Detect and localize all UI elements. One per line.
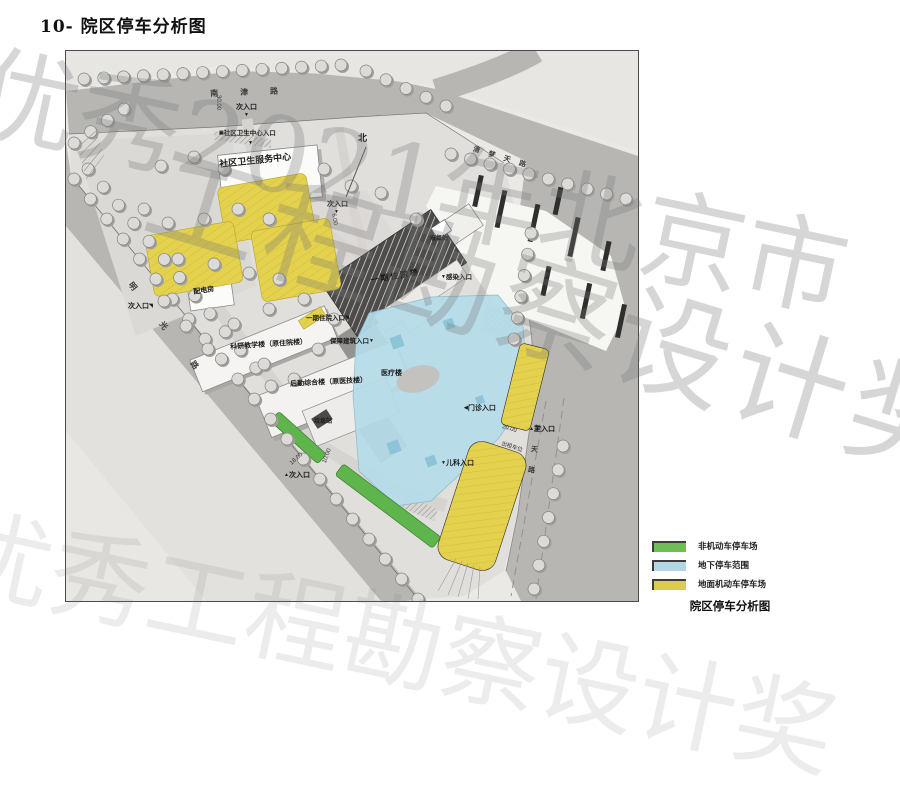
arrow-icon: ▼ [369,338,374,344]
dimension-30: 30.00 [215,95,221,110]
entrance-label-infection: ▼感染入口 [441,275,472,282]
site-plan-svg [66,51,638,601]
legend-row-bike: 非机动车停车场 [652,540,766,552]
map-caption: 院区停车分析图 [660,598,800,614]
arrow-down-icon: ▼ [248,141,253,146]
legend-row-surface: 地面机动车停车场 [652,578,766,590]
entrance-label-outpatient: ◀门诊入口 [464,405,496,412]
legend-row-underground: 地下停车范围 [652,559,766,571]
entrance-label-phase1-inpatient: 一期住院入口◥ [306,316,349,323]
building-label-oxygen-station: 液氧站 [430,236,448,242]
entrance-label-west-secondary: 次入口◥ [128,303,153,310]
legend-label-underground: 地下停车范围 [698,559,749,571]
entrance-label-community-center: ▣社区卫生中心入口 [219,131,276,138]
legend: 非机动车停车场 地下停车范围 地面机动车停车场 [652,540,766,597]
building-label-medical: 医疗楼 [381,370,402,377]
site-plan-frame [65,50,639,602]
entrance-label-south-secondary: ▲次入口 [284,472,310,479]
legend-swatch-green [652,541,686,552]
entrance-label-support-building: 保障建筑入口▼ [330,339,374,346]
building-label-garbage-station: 垃圾站 [314,419,332,425]
entrance-label-pediatrics: ▼儿科入口 [441,460,474,467]
arrow-icon: ◥ [345,315,349,321]
entrance-label-center-secondary: 次入口 [327,201,348,208]
legend-swatch-yellow [652,579,686,590]
parking-analysis-page: { "title": "10- 院区停车分析图", "watermark": {… [0,0,900,636]
page-title: 10- 院区停车分析图 [40,12,207,37]
legend-label-surface: 地面机动车停车场 [698,578,766,590]
legend-label-bike: 非机动车停车场 [698,540,758,552]
arrow-down-icon: ▼ [244,113,249,118]
north-label: 北 [358,134,367,143]
arrow-icon: ◥ [149,303,153,309]
entrance-label-north-secondary: 次入口 [236,104,257,111]
legend-swatch-blue [652,560,686,571]
entrance-label-main: ▲主入口 [529,426,555,433]
